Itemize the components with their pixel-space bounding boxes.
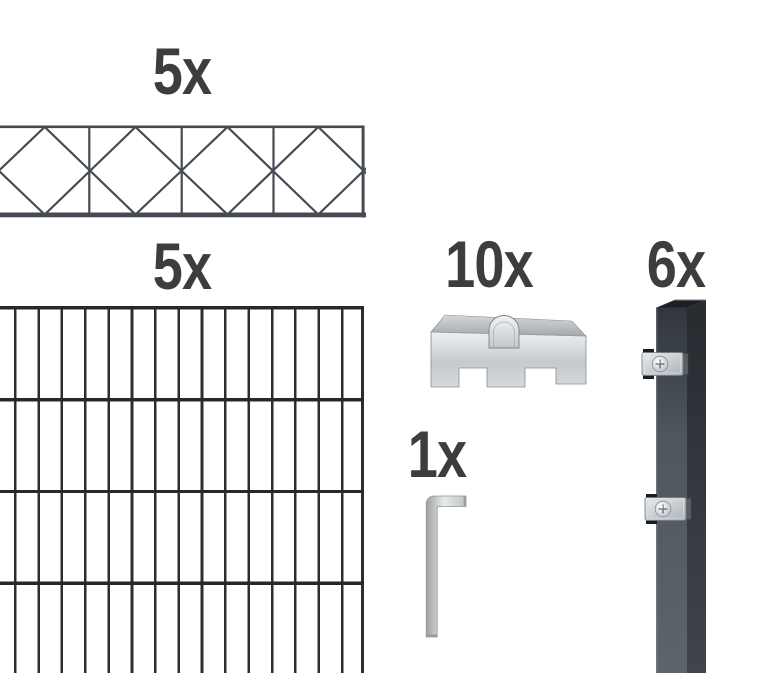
topper-divider-wire [272,127,274,217]
post-qty-label: 6x [647,231,706,297]
mesh-edge-bar [361,307,364,673]
topper-panel-qty-label: 5x [153,38,212,104]
allen-key-tip-face [464,496,466,506]
topper-edge-wire [362,126,365,218]
mesh-panel-graphic [0,304,366,673]
fence-kit-collage: 5x 5x [0,0,769,673]
post-clamp-upper [642,349,688,379]
topper-panel-graphic [0,124,366,219]
post-side-face [687,300,706,673]
connector-qty-label: 10x [445,231,533,297]
mesh-vertical-bars [14,307,364,673]
mesh-panel-qty-label: 5x [153,233,212,299]
topper-divider-wire [88,127,90,217]
connector-bracket-graphic [428,308,588,390]
hex-key-qty-label: 1x [408,421,467,487]
post-graphic [640,296,710,673]
lattice-zigzag-wire [0,127,366,215]
allen-key-bottom-face [426,634,437,636]
post-clamp-lower [645,494,691,524]
hex-key-graphic [420,490,475,642]
topper-divider-wire [181,127,183,217]
mesh-horizontal-rails [0,306,364,585]
topper-bottom-rail [0,213,366,218]
allen-key-body [426,496,466,637]
